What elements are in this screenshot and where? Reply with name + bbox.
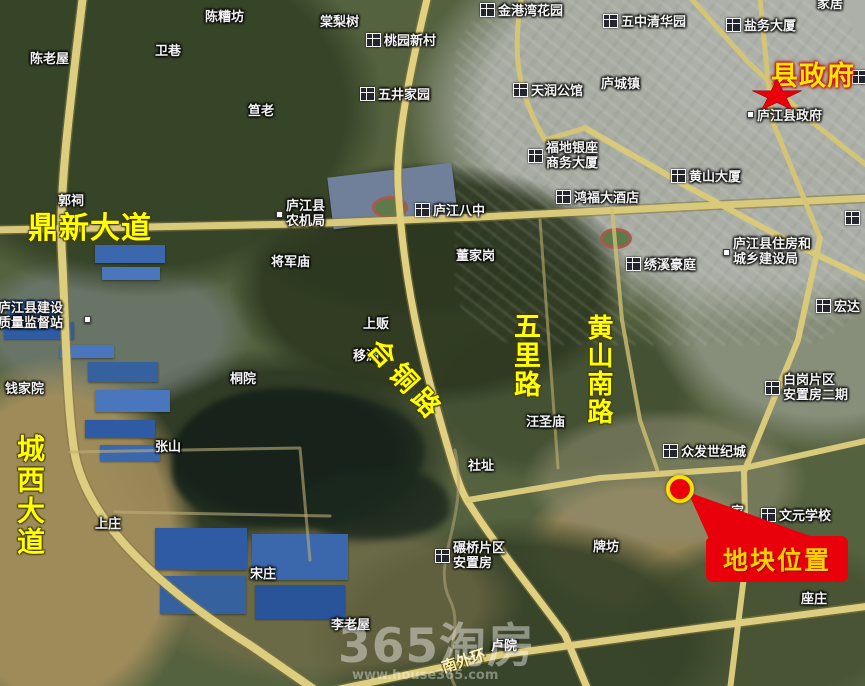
place-label-jianshezhijianzhan: 庐江县建设质量监督站 (0, 301, 63, 331)
place-label-jingangwan: 金港湾花园 (480, 0, 563, 19)
building-icon (845, 211, 860, 225)
place-label-wujingjiayuan: 五井家园 (360, 84, 430, 103)
gov-dot-icon (276, 211, 283, 218)
red-star-icon (751, 79, 803, 112)
place-label-tongyuan: 桐院 (230, 368, 256, 387)
building-icon (816, 299, 831, 313)
place-label-baigangpianqu: 白岗片区安置房二期 (765, 373, 848, 403)
road-segment (70, 448, 310, 560)
place-label-weixiang: 卫巷 (155, 40, 181, 59)
road-segment (517, 0, 585, 140)
place-label-chenlaowu: 陈老屋 (30, 48, 69, 67)
place-label-qianjiayuan: 钱家院 (5, 378, 44, 397)
place-label-dongjiagang: 董家岗 (456, 245, 495, 264)
watermark-url: www.house365.com (352, 668, 498, 683)
building-icon (626, 257, 641, 271)
watermark-brand: 365淘房 (338, 624, 535, 670)
building-icon (765, 381, 780, 395)
road-segment (115, 512, 330, 516)
plot-location-label: 地块位置 (723, 541, 831, 577)
place-label-wenyuanschool: 文元学校 (761, 505, 831, 524)
road-label-huangshan-south-road: 黄山南路 (580, 314, 617, 426)
building-icon (366, 33, 381, 47)
building-icon (528, 149, 543, 163)
building-icon (480, 3, 495, 17)
building-icon (761, 508, 776, 522)
place-label-xiuxihaoting: 绣溪豪庭 (626, 254, 696, 273)
school-icon (415, 203, 430, 217)
place-label-luchengzhen: 庐城镇 (601, 73, 640, 92)
building-icon (726, 18, 741, 32)
road-label-dingxin-avenue: 鼎新大道 (28, 203, 152, 247)
satellite-map: 陈老屋 卫巷 陈糟坊 笪老 棠梨树 桃园新村 金港湾花园 五井家园 五中清华园 … (0, 0, 865, 686)
place-label-huangshandasha: 黄山大厦 (671, 166, 741, 185)
building-icon (603, 14, 618, 28)
place-label-songzhuang: 宋庄 (250, 563, 276, 582)
gov-dot-icon (723, 249, 730, 256)
building-icon (435, 549, 450, 563)
place-label-taoyuanxincun: 桃园新村 (366, 30, 436, 49)
place-label-zhufangju: 庐江县住房和城乡建设局 (723, 237, 811, 267)
plot-location-marker (666, 475, 694, 503)
place-label-hongfuhotel: 鸿福大酒店 (556, 187, 639, 206)
place-label-zhangshan: 张山 (155, 436, 181, 455)
place-label-zhongfashijicheng: 众发世纪城 (663, 441, 746, 460)
place-label-shezhi: 社址 (468, 455, 494, 474)
building-icon (513, 83, 528, 97)
road-label-wuli-road: 五里路 (505, 312, 544, 399)
place-label-fudiyinzuo: 福地银座商务大厦 (528, 141, 598, 171)
place-label-jiangjunmiao: 将军庙 (271, 251, 310, 270)
place-label-yanwudasha: 盐务大厦 (726, 15, 796, 34)
building-icon (671, 169, 686, 183)
road-label-chengxi-avenue: 城西大道 (9, 434, 49, 558)
plot-location-callout: 地块位置 (706, 536, 848, 582)
place-label-nongjiju: 庐江县农机局 (276, 199, 325, 229)
place-label-chenzaofang: 陈糟坊 (205, 6, 244, 25)
place-label-tianrungongguan: 天润公馆 (513, 80, 583, 99)
building-icon (556, 190, 571, 204)
road-chengxi (61, 0, 315, 686)
place-label-zuozhuang: 座庄 (801, 588, 827, 607)
place-label-shangfan: 上贩 (363, 313, 389, 332)
building-icon (360, 87, 375, 101)
place-label-hongda: 宏达 (816, 296, 860, 315)
road-segment (61, 0, 315, 686)
place-label-shangzhuang: 上庄 (95, 513, 121, 532)
place-label-corner-partial: 家居 (817, 0, 843, 12)
place-label-paifang: 牌坊 (593, 536, 619, 555)
place-label-lujiangbazhong: 庐江八中 (415, 200, 485, 219)
place-label-nianqiaopianqu: 碾桥片区安置房 (435, 541, 505, 571)
place-label-partial-jia: 家 (731, 501, 744, 520)
road-huangshan-south (612, 208, 658, 472)
place-label-tanglishu: 棠梨树 (320, 11, 359, 30)
place-label-dalao: 笪老 (248, 100, 274, 119)
gov-dot-icon (84, 316, 91, 323)
place-label-wangshengmiao: 汪圣庙 (526, 411, 565, 430)
building-icon (663, 444, 678, 458)
road-network (0, 0, 865, 686)
gov-dot-icon (747, 111, 754, 118)
place-label-wuzhongqinghuayuan: 五中清华园 (603, 11, 686, 30)
